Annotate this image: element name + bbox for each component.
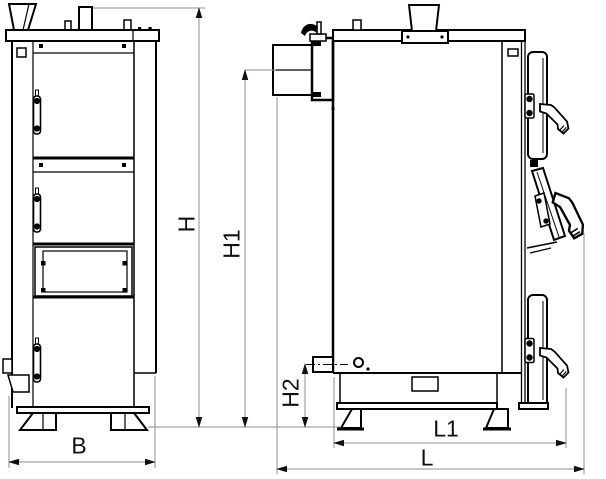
- side-middle-door-open: [527, 160, 591, 253]
- side-drain-stub: [306, 357, 370, 372]
- front-pipe-stub-left: [65, 21, 71, 30]
- dim-label-h: H: [174, 216, 201, 233]
- side-damper-valve: [301, 22, 326, 41]
- front-view: [3, 4, 159, 430]
- front-bolt-strip-top: [33, 44, 134, 53]
- dim-label-b: B: [71, 433, 86, 460]
- front-middle-door-handle: [34, 188, 41, 232]
- front-base: [17, 407, 149, 430]
- front-pipe-stub-center: [79, 7, 92, 30]
- front-chimney-collar: [9, 4, 36, 30]
- dim-label-l: L: [421, 445, 434, 472]
- front-recessed-frame: [35, 247, 132, 296]
- front-top-door-handle: [34, 90, 41, 134]
- front-divider-1: [33, 158, 134, 172]
- front-bottom-door-handle: [34, 338, 41, 382]
- side-bottom-door: [525, 295, 569, 406]
- dim-label-h1: H1: [219, 229, 246, 258]
- side-view: [273, 5, 591, 429]
- front-top-cover: [6, 27, 159, 41]
- side-top-door: [525, 52, 569, 159]
- side-body: [332, 41, 526, 405]
- technical-drawing-canvas: H H1 H2 B L1 L: [0, 0, 606, 479]
- front-sensor-square: [17, 48, 26, 57]
- front-pipe-stub-right: [124, 20, 131, 30]
- front-left-bracket: [3, 359, 29, 392]
- side-chimney: [402, 5, 448, 43]
- dim-label-h2: H2: [278, 378, 305, 407]
- side-flue-outlet: [273, 38, 333, 100]
- dim-label-l1: L1: [433, 416, 459, 443]
